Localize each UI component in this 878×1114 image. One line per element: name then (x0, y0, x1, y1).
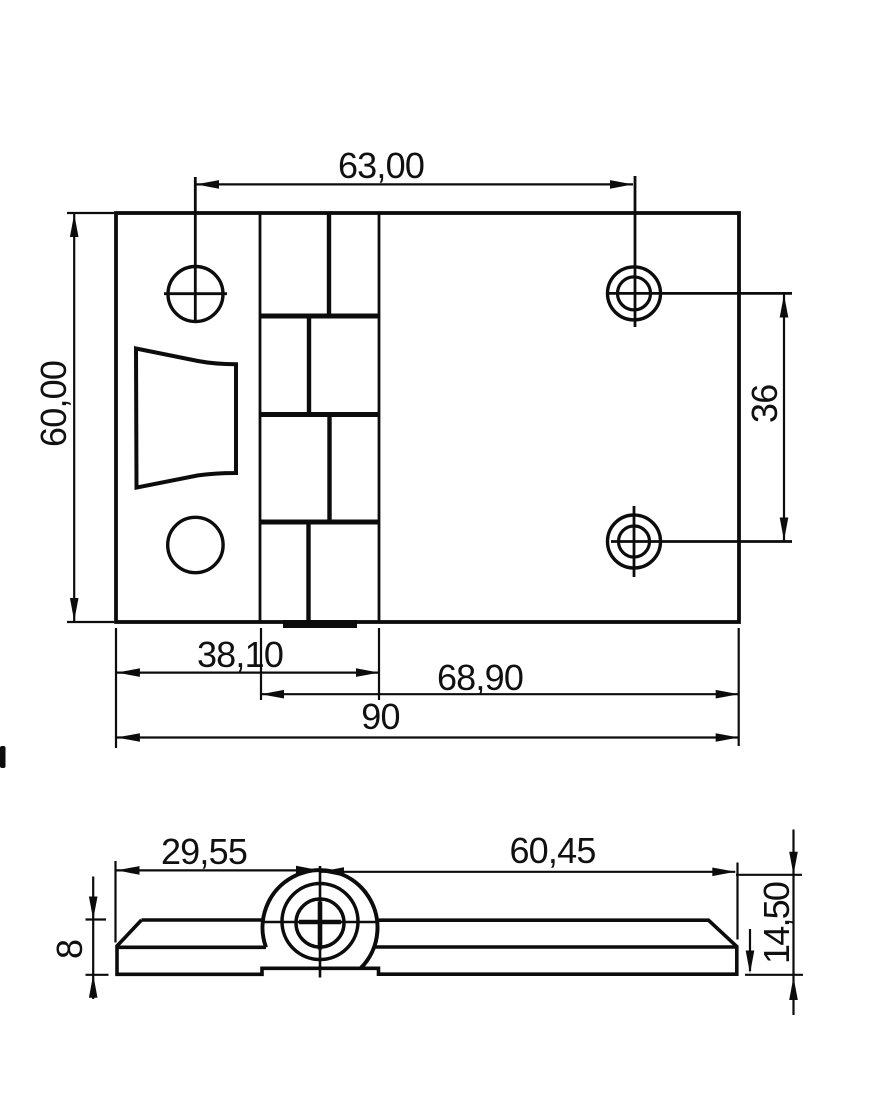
svg-text:60,00: 60,00 (33, 361, 74, 447)
svg-text:8: 8 (49, 940, 90, 959)
svg-text:63,00: 63,00 (338, 145, 424, 186)
svg-text:38,10: 38,10 (197, 634, 283, 675)
svg-text:90: 90 (361, 696, 399, 737)
svg-text:68,90: 68,90 (437, 657, 523, 698)
svg-text:29,55: 29,55 (161, 831, 247, 872)
svg-text:60,45: 60,45 (509, 830, 595, 871)
svg-text:36: 36 (744, 385, 785, 423)
svg-text:14,50: 14,50 (756, 882, 797, 964)
